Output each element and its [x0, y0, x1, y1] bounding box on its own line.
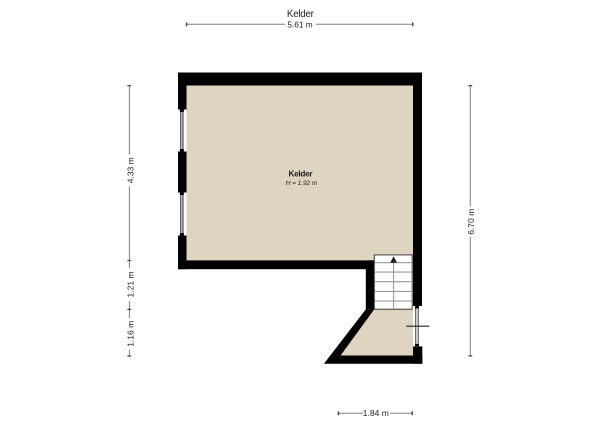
svg-text:H = 1.92 m: H = 1.92 m [286, 180, 318, 187]
svg-text:Kelder: Kelder [287, 9, 315, 20]
svg-text:6.70 m: 6.70 m [466, 209, 476, 235]
svg-text:4.33 m: 4.33 m [126, 157, 136, 183]
svg-text:Kelder: Kelder [289, 170, 314, 179]
svg-text:1.21 m: 1.21 m [126, 272, 136, 298]
svg-text:1.84 m: 1.84 m [363, 408, 389, 418]
svg-text:1.16 m: 1.16 m [126, 321, 136, 347]
svg-text:5.61 m: 5.61 m [287, 19, 312, 29]
